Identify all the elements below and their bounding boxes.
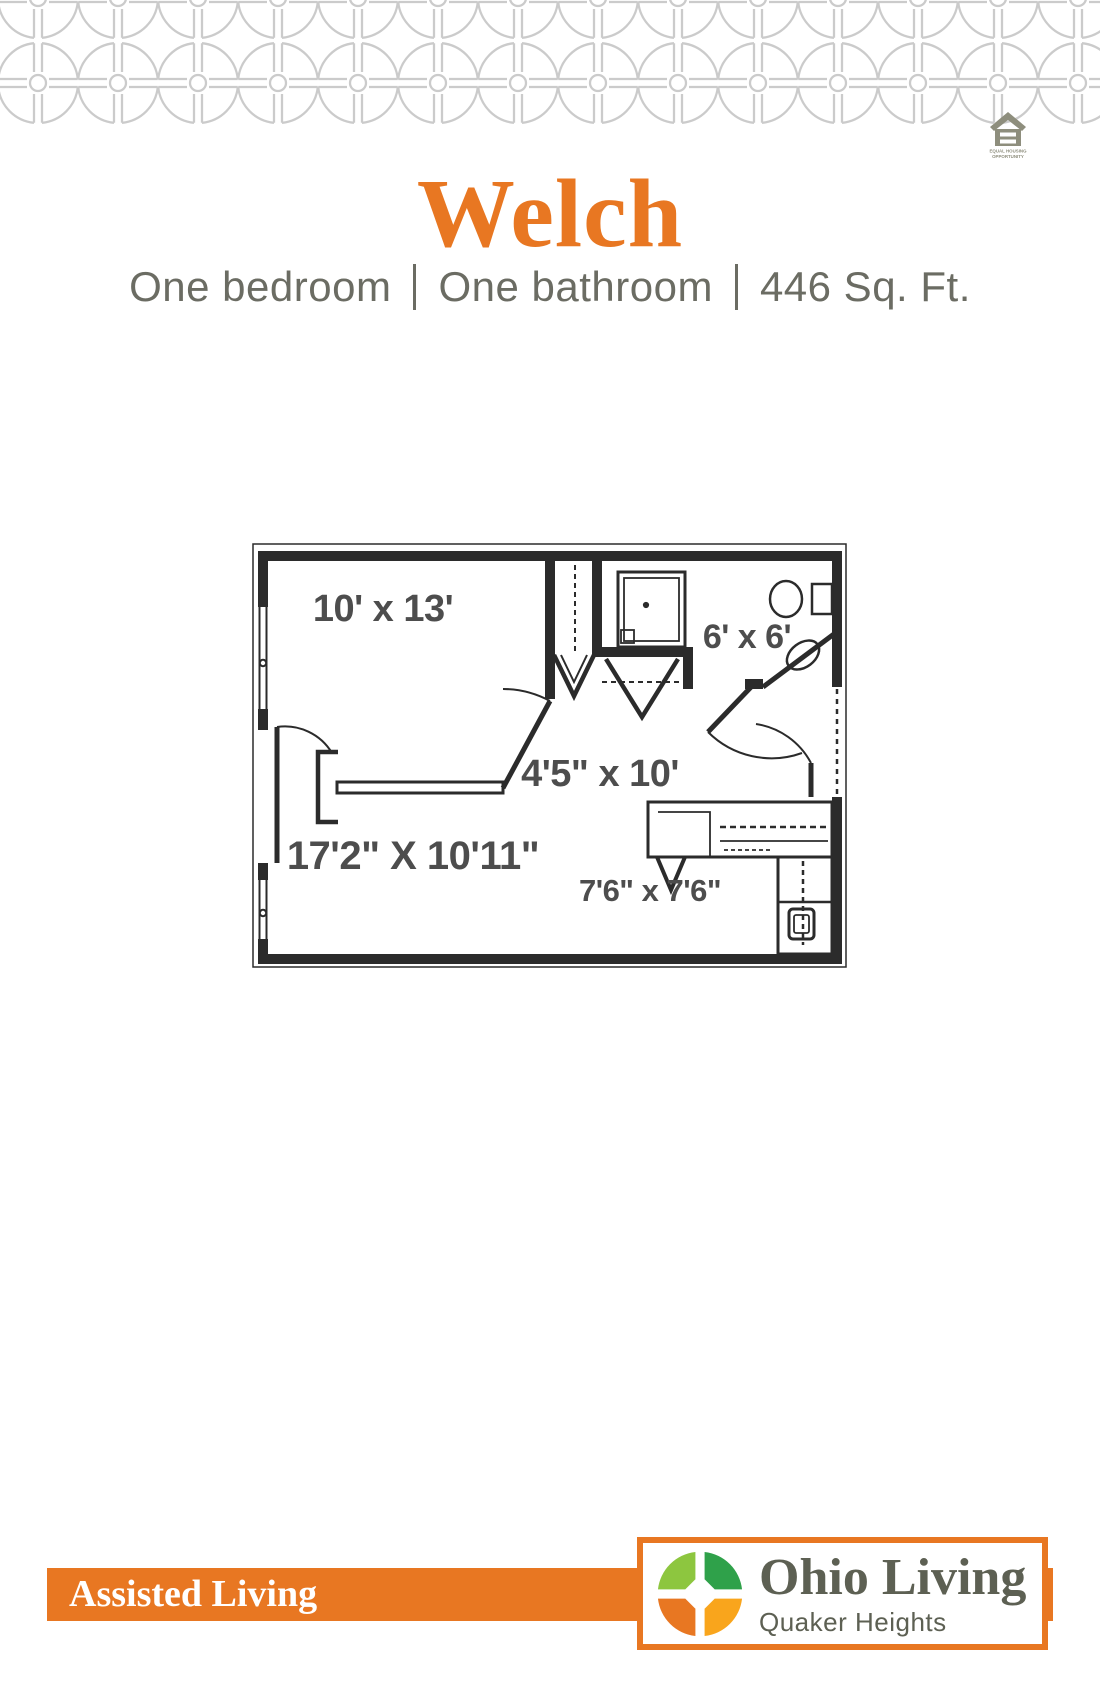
bathroom-dimension-label: 6' x 6' [703,618,791,656]
window-icon [258,605,268,940]
care-level-label: Assisted Living [69,1573,317,1615]
pattern-fill [0,0,1100,126]
equal-housing-opportunity-icon: EQUAL HOUSING OPPORTUNITY [986,110,1030,162]
spec-bathrooms: One bathroom [438,263,713,310]
interior-wall [337,782,503,793]
shower-icon [618,572,685,647]
spec-separator [735,264,738,310]
hallway-dimension-label: 4'5" x 10' [521,753,679,795]
living-room-dimension-label: 17'2" X 10'11" [287,834,539,878]
eho-text-line1: EQUAL HOUSING [990,149,1028,154]
toilet-icon [770,581,832,617]
logo-subname: Quaker Heights [759,1609,1026,1635]
room-labels: 10' x 13' 6' x 6' 4'5" x 10' 17'2" X 10'… [287,588,791,908]
bathroom-door [708,685,802,758]
unit-specs: One bedroomOne bathroom446 Sq. Ft. [0,262,1100,312]
entry-door [756,689,837,797]
unit-name-title: Welch [0,163,1100,266]
spec-square-feet: 446 Sq. Ft. [760,263,971,310]
logo-name: Ohio Living [759,1552,1026,1604]
bedroom-closet [554,565,594,696]
eho-text-line2: OPPORTUNITY [992,154,1024,159]
bedroom-dimension-label: 10' x 13' [313,588,453,630]
ohio-living-logo-mark-icon [654,1548,746,1640]
floor-plan: 10' x 13' 6' x 6' 4'5" x 10' 17'2" X 10'… [250,505,850,970]
hall-closet [602,659,683,717]
eho-roof [990,112,1026,131]
spec-separator [413,264,416,310]
ohio-living-logo: Ohio Living Quaker Heights [637,1537,1048,1650]
decorative-circle-pattern [0,0,1100,126]
spec-bedrooms: One bedroom [129,263,391,310]
flyer-page: EQUAL HOUSING OPPORTUNITY Welch One bedr… [0,0,1100,1700]
kitchen-sink-icon [789,909,814,939]
kitchen-dimension-label: 7'6" x 7'6" [579,873,721,908]
logo-text-block: Ohio Living Quaker Heights [759,1552,1026,1635]
